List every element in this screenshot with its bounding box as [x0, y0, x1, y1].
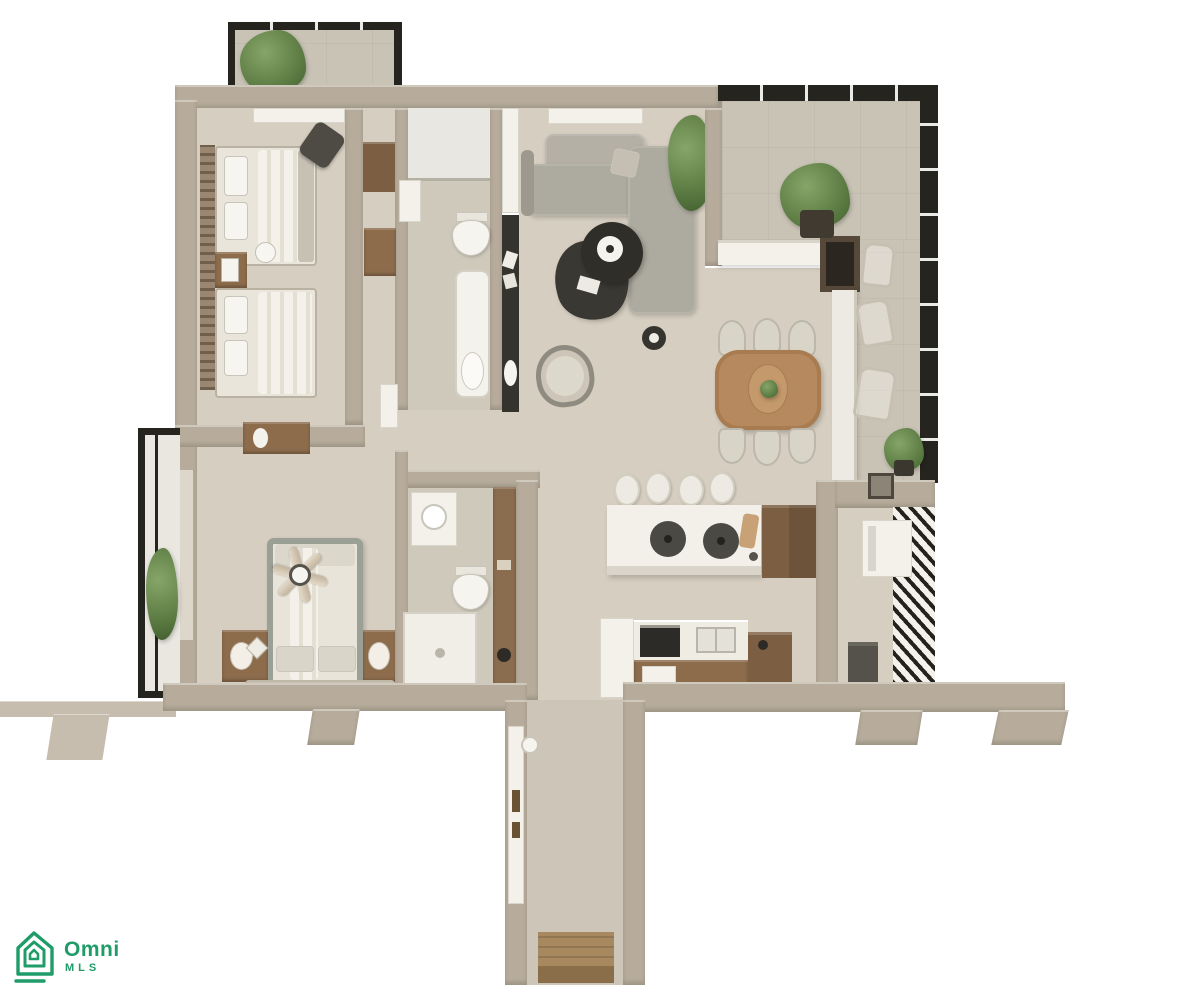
sofa-cushion — [610, 148, 641, 179]
coffee-table-tray-dot — [606, 245, 614, 253]
dining-chair-top-2 — [753, 318, 781, 354]
bar-stool-1 — [614, 474, 640, 506]
twin-nightstand-frame — [221, 258, 239, 282]
dining-chair-bottom-1 — [718, 428, 746, 464]
hall-cabinet-2 — [364, 228, 396, 276]
master-pillow-2 — [318, 646, 356, 672]
fan-hub — [289, 564, 311, 586]
master-vanity-sink — [421, 504, 447, 530]
top-balcony-railing-top — [228, 22, 402, 30]
bathroom1-tub-basin — [461, 352, 484, 390]
twin-bed-b-pillow2 — [224, 340, 248, 376]
ceiling-fan — [242, 517, 358, 633]
dining-chair-bottom-3 — [788, 428, 816, 464]
bottom-stub-1 — [46, 714, 109, 760]
bottom-stub-4 — [991, 710, 1068, 745]
hall-cabinet-1 — [363, 142, 395, 192]
corridor-lamp — [521, 736, 539, 754]
floor-plan-render: Omni MLS — [0, 0, 1200, 1000]
bathroom1-wall-left — [395, 108, 408, 410]
twin-bedroom-closet — [253, 108, 345, 123]
twin-bed-b-pillow — [224, 296, 248, 334]
logo-brand-text: Omni — [64, 940, 120, 960]
oven — [640, 625, 680, 657]
armchair-pad — [546, 356, 584, 396]
side-balcony-plant — [146, 548, 178, 640]
master-pillow-1 — [276, 646, 314, 672]
twin-bed-a-throw — [298, 150, 314, 262]
terrace-chair-1 — [860, 241, 896, 288]
hall-door — [380, 384, 398, 428]
bar-stool-3 — [678, 474, 704, 506]
terrace-white-wall — [832, 290, 857, 480]
island-faucet — [749, 552, 758, 561]
cooktop-burner-2-dot — [717, 537, 725, 545]
bar-stool-4 — [709, 472, 735, 504]
entry-door-handle-2 — [512, 822, 520, 838]
dining-chair-bottom-2 — [753, 430, 781, 466]
watermark-logo: Omni MLS — [12, 928, 162, 990]
bathroom1-wall-right — [490, 108, 502, 410]
bar-stool-2 — [645, 472, 671, 504]
master-bath-shelf — [493, 487, 516, 697]
corridor-wall-right — [623, 700, 645, 985]
console-vessel-sink — [504, 360, 517, 386]
doormat-threshold — [538, 966, 614, 983]
corner-cabinet-item — [758, 640, 768, 650]
logo-sub-text: MLS — [65, 962, 100, 974]
master-bath-wall-right — [516, 480, 538, 700]
doormat — [538, 932, 614, 968]
top-balcony-railing-left — [228, 22, 235, 90]
side-balcony-frame-top — [138, 428, 180, 435]
bathroom1-sink-cabinet — [399, 180, 421, 222]
terrace-chair-3 — [852, 365, 898, 422]
master-lamp-right — [368, 642, 390, 670]
twin-bed-a-pillow2 — [224, 202, 248, 240]
terrace-frame-top — [718, 85, 938, 101]
bottom-wall-right — [623, 682, 1065, 712]
dining-centerpiece — [760, 380, 778, 398]
twin-bedroom-radiator — [200, 145, 215, 390]
sofa-arm — [521, 150, 534, 216]
shelf-item-dark — [497, 648, 511, 662]
cooktop-burner-1-dot — [664, 535, 672, 543]
bottom-stub-3 — [855, 710, 923, 745]
sink-divider — [715, 629, 717, 651]
twin-lamp — [255, 242, 276, 263]
terrace-frame-right — [920, 85, 938, 483]
entry-door — [508, 726, 524, 904]
outer-wall-top — [175, 85, 718, 109]
bathroom1-shower — [408, 108, 490, 180]
washer-slot — [868, 526, 876, 571]
twin-bedroom-wall-right — [345, 108, 363, 425]
twin-bed-a-pillow — [224, 156, 248, 196]
laundry-plant-pot — [894, 460, 914, 476]
kitchen-wall-right — [816, 480, 838, 700]
living-console — [548, 108, 643, 124]
terrace-bar-halfwall — [718, 240, 822, 265]
terrace-bar-unit-inner — [826, 242, 854, 286]
twin-bed-b-duvet — [258, 292, 312, 394]
terrace-plant-pot — [800, 210, 834, 238]
shelf-item-light — [497, 560, 511, 570]
side-balcony-frame-left — [138, 428, 145, 698]
house-outline-icon — [12, 930, 56, 986]
master-dresser-decor — [253, 428, 268, 448]
bottom-stub-2 — [307, 709, 360, 745]
wall-frame — [868, 473, 894, 499]
side-table-top — [649, 333, 659, 343]
master-shower-drain — [435, 648, 445, 658]
bottom-wall-master — [163, 683, 527, 711]
entry-door-handle — [512, 790, 520, 812]
living-tall-cabinet — [502, 108, 519, 213]
pantry-cabinet — [762, 505, 816, 578]
